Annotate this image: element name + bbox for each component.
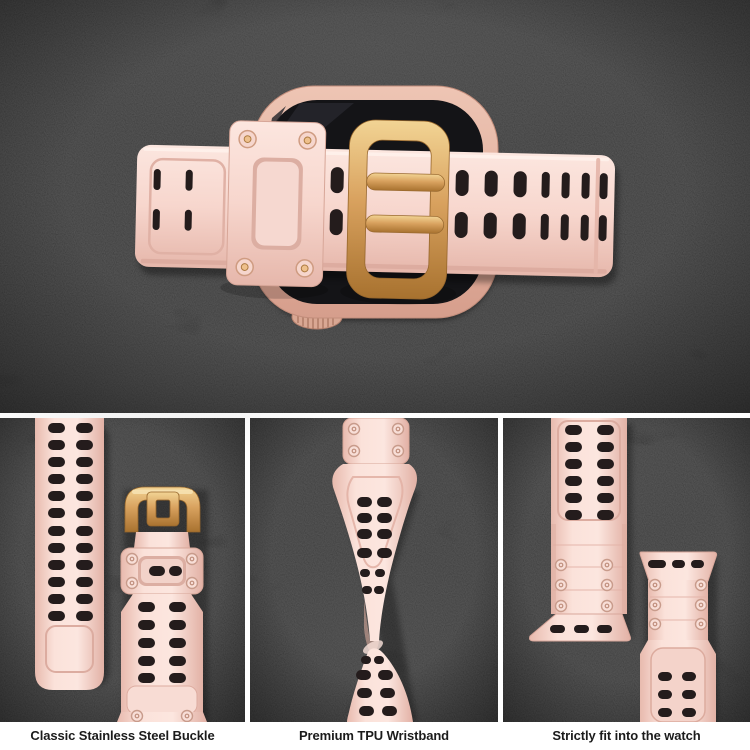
band-neck xyxy=(134,532,190,548)
screw xyxy=(393,446,404,457)
screw xyxy=(349,446,360,457)
band-keeper-plate xyxy=(226,121,326,287)
caption-wristband: Premium TPU Wristband xyxy=(250,722,498,750)
product-image-page: Classic Stainless Steel Buckle Premium T… xyxy=(0,0,750,750)
screw xyxy=(296,260,313,277)
screw xyxy=(127,578,138,589)
screw xyxy=(236,258,253,275)
buckle-prong xyxy=(366,173,444,192)
band-strip-buckle xyxy=(117,487,207,722)
screw xyxy=(556,580,567,591)
screw xyxy=(182,711,193,722)
connector-plate xyxy=(343,418,409,464)
caption-buckle: Classic Stainless Steel Buckle xyxy=(0,722,245,750)
product-collage-art xyxy=(0,0,750,722)
screw xyxy=(132,711,143,722)
band-end-pad xyxy=(127,686,197,714)
keeper-window xyxy=(255,161,299,246)
screw xyxy=(187,554,198,565)
screw xyxy=(349,424,360,435)
screw xyxy=(393,424,404,435)
screw xyxy=(650,580,661,591)
screw xyxy=(239,130,256,147)
band-strip-perforated xyxy=(35,418,104,690)
adapter-slots xyxy=(550,625,612,633)
band-connector-strip-right xyxy=(640,552,717,722)
edge-shading xyxy=(551,524,556,614)
screw xyxy=(602,560,613,571)
screw xyxy=(696,580,707,591)
screw xyxy=(187,578,198,589)
screw xyxy=(602,580,613,591)
panel-photo-fit xyxy=(460,400,750,722)
screw xyxy=(650,600,661,611)
screw xyxy=(127,554,138,565)
band-strap xyxy=(135,145,616,278)
screw xyxy=(556,560,567,571)
screw xyxy=(602,601,613,612)
buckle-prong xyxy=(366,215,444,234)
edge-shading xyxy=(622,524,627,614)
band-flare xyxy=(117,712,207,722)
screw xyxy=(650,619,661,630)
caption-row: Classic Stainless Steel Buckle Premium T… xyxy=(0,722,750,750)
screw xyxy=(696,600,707,611)
panel-photo-buckle xyxy=(0,400,245,722)
screw xyxy=(299,132,316,149)
screw xyxy=(696,619,707,630)
adapter-slots xyxy=(648,560,704,568)
band-keeper xyxy=(121,548,203,594)
hero-photo xyxy=(0,0,750,465)
screw xyxy=(556,601,567,612)
caption-fit: Strictly fit into the watch xyxy=(503,722,750,750)
panel-photo-wristband xyxy=(250,418,498,722)
